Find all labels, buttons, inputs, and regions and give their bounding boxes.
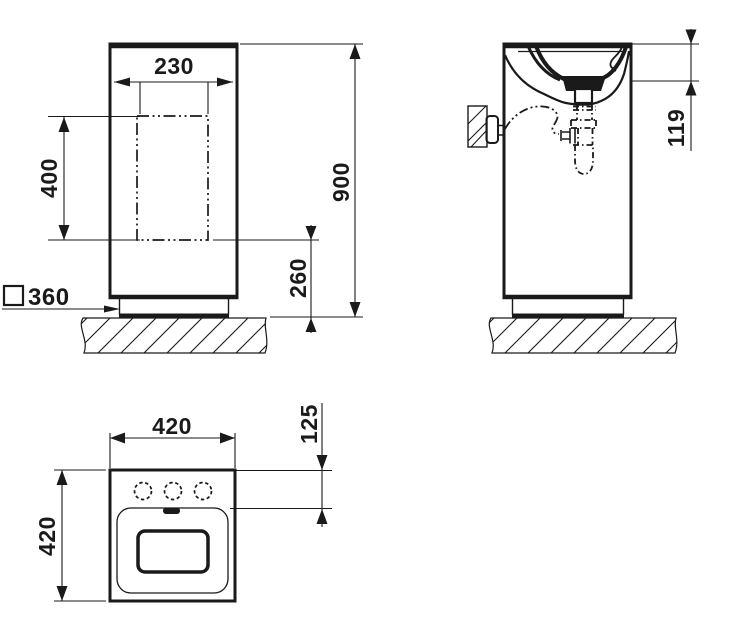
dim-119-label: 119 [663, 109, 689, 148]
wall-hatch-lines [468, 106, 487, 147]
arrowhead [59, 117, 70, 132]
dim-420-depth-label: 420 [34, 516, 60, 556]
bowl-rim-outline [117, 508, 228, 593]
trap-outlet-fitting [561, 128, 575, 144]
tap-hole-right [195, 483, 212, 500]
service-cutout-hidden-rect [137, 116, 208, 240]
arrowhead [686, 30, 697, 45]
side-view: 119 [455, 29, 703, 357]
drain-opening [575, 89, 592, 103]
leader-arrowhead [104, 306, 120, 313]
dim-cutout-width: 230 [114, 53, 233, 114]
dim-420-width-label: 420 [152, 413, 192, 439]
arrowhead [686, 81, 697, 96]
square-section-symbol-icon [4, 286, 23, 305]
tap-hole-left [135, 483, 152, 500]
arrowhead [59, 225, 70, 240]
angle-valve [487, 116, 499, 143]
dim-360-label: 360 [28, 284, 70, 311]
arrowhead [350, 44, 361, 59]
dim-cutout-height: 400 [36, 117, 140, 241]
arrowhead [110, 433, 125, 444]
arrowhead [306, 318, 317, 332]
arrowhead [217, 78, 233, 87]
dim-900-label: 900 [328, 162, 354, 202]
tap-holes [135, 483, 212, 500]
arrowhead [306, 226, 317, 240]
floor-front [48, 316, 296, 357]
plinth-front [119, 299, 229, 316]
dim-base-square: 360 [2, 284, 120, 313]
arrowhead [114, 78, 130, 87]
arrowhead [350, 302, 361, 317]
bowl-floor-outline [138, 531, 208, 572]
overflow-slot [163, 508, 180, 515]
dim-rim-to-outlet: 119 [632, 29, 699, 151]
dim-plan-width: 420 [110, 413, 235, 468]
flexible-hose-hidden [505, 106, 559, 134]
front-view: 230 400 900 260 [2, 44, 363, 357]
tap-hole-center [165, 483, 182, 500]
dim-125-label: 125 [296, 404, 322, 444]
arrowhead [57, 470, 68, 485]
floor-side [455, 316, 703, 357]
wall-connection [468, 106, 504, 147]
dim-plan-depth: 420 [34, 470, 106, 601]
plan-view: 420 420 125 [34, 403, 332, 601]
basin-plan-outline [110, 470, 235, 601]
arrowhead [317, 509, 328, 524]
drawing-canvas: 230 400 900 260 [0, 0, 744, 625]
arrowhead [317, 455, 328, 470]
arrowhead [220, 433, 235, 444]
technical-drawing-page: 230 400 900 260 [0, 0, 744, 625]
dim-230-label: 230 [154, 53, 194, 79]
dim-front-edge-to-basin: 125 [230, 403, 332, 527]
dim-400-label: 400 [36, 158, 62, 198]
dim-260-label: 260 [285, 258, 311, 298]
arrowhead [57, 586, 68, 601]
basin-section [505, 46, 629, 105]
plinth-side [512, 299, 624, 316]
